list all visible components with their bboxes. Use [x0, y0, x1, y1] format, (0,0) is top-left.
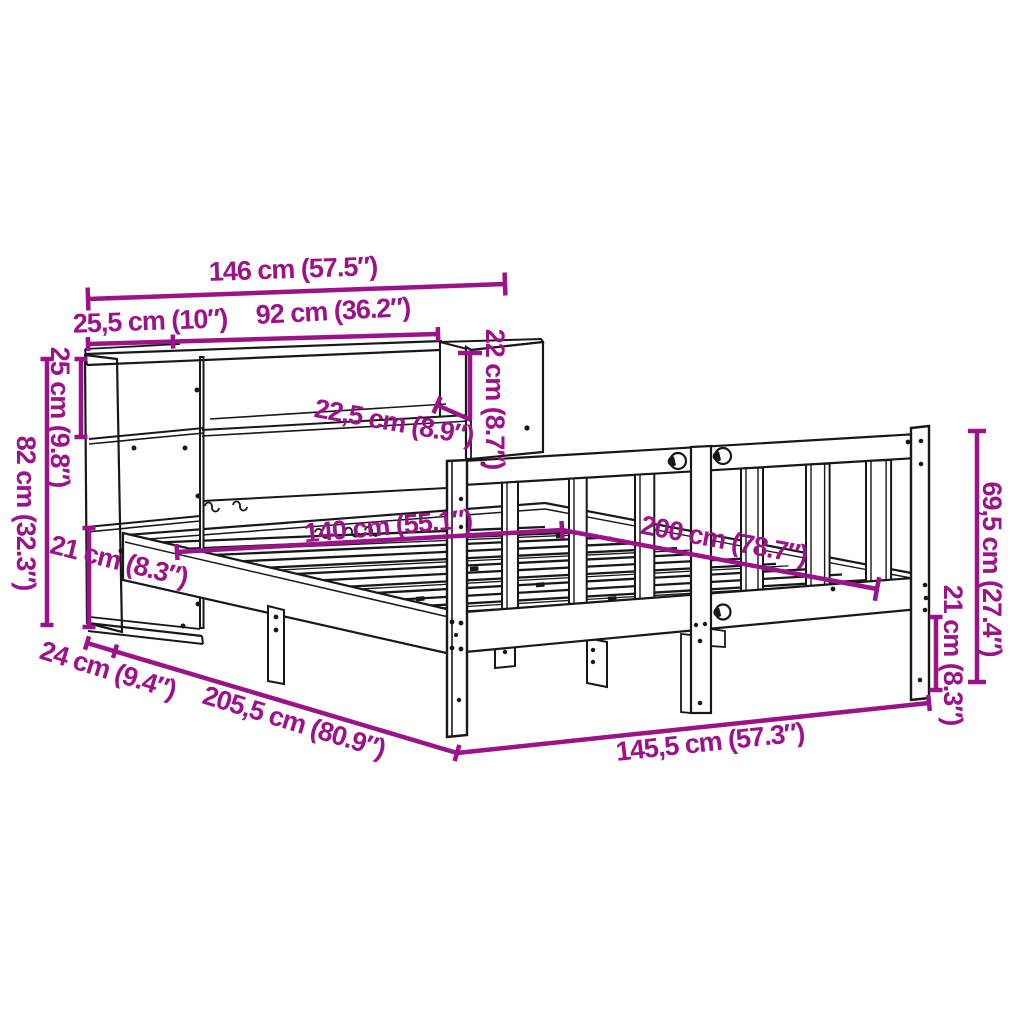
svg-text:22 cm (8.7″): 22 cm (8.7″): [480, 329, 510, 470]
svg-text:21 cm (8.3″): 21 cm (8.3″): [938, 585, 968, 726]
svg-text:146 cm (57.5″): 146 cm (57.5″): [208, 251, 377, 287]
svg-text:25 cm (9.8″): 25 cm (9.8″): [45, 347, 75, 488]
svg-text:25,5 cm (10″): 25,5 cm (10″): [72, 303, 227, 338]
svg-text:82 cm (32.3″): 82 cm (32.3″): [11, 436, 41, 591]
svg-text:69,5 cm (27.4″): 69,5 cm (27.4″): [977, 481, 1007, 656]
